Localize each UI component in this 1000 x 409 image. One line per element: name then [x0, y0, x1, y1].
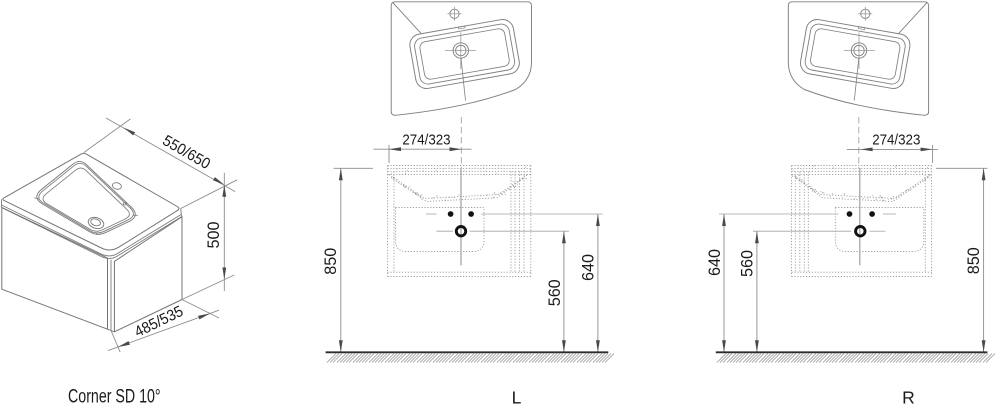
- svg-text:274/323: 274/323: [872, 131, 920, 148]
- svg-text:274/323: 274/323: [402, 132, 450, 149]
- svg-text:560: 560: [739, 250, 757, 277]
- svg-text:640: 640: [706, 249, 724, 276]
- svg-text:L: L: [512, 388, 522, 405]
- svg-text:560: 560: [546, 279, 564, 306]
- svg-text:500: 500: [205, 222, 223, 249]
- svg-text:850: 850: [322, 248, 340, 275]
- svg-text:Corner SD 10°: Corner SD 10°: [68, 387, 161, 405]
- svg-text:R: R: [902, 388, 915, 405]
- svg-text:850: 850: [965, 247, 983, 274]
- svg-text:640: 640: [580, 254, 598, 281]
- svg-text:485/535: 485/535: [132, 303, 186, 341]
